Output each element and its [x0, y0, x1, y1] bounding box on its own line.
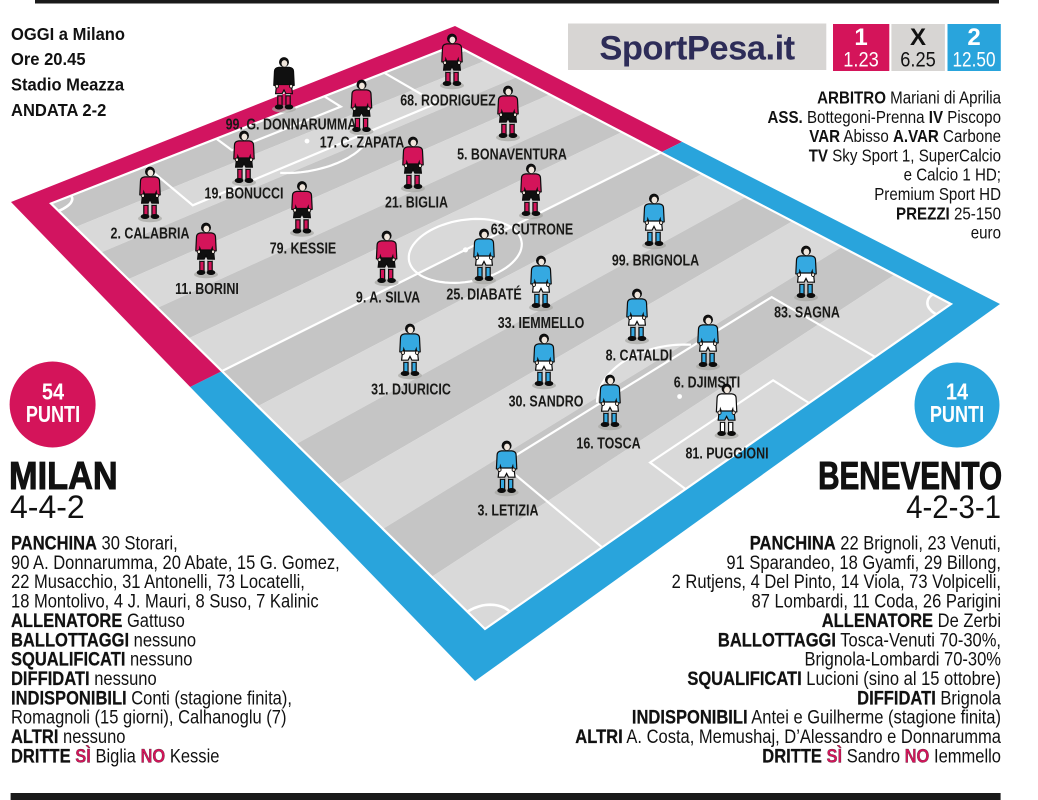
- svg-text:31. DJURICIC: 31. DJURICIC: [371, 381, 451, 399]
- svg-text:SQUALIFICATI nessuno: SQUALIFICATI nessuno: [11, 649, 193, 670]
- svg-text:22 Musacchio, 31 Antonelli, 73: 22 Musacchio, 31 Antonelli, 73 Locatelli…: [11, 571, 305, 592]
- svg-text:PUNTI: PUNTI: [930, 402, 984, 428]
- svg-text:25. DIABATÉ: 25. DIABATÉ: [446, 285, 521, 304]
- svg-text:Ore 20.45: Ore 20.45: [11, 49, 86, 70]
- svg-text:33. IEMMELLO: 33. IEMMELLO: [498, 315, 585, 333]
- svg-text:6.25: 6.25: [900, 48, 936, 72]
- svg-text:PREZZI 25-150: PREZZI 25-150: [896, 203, 1001, 224]
- svg-text:91 Sparandeo, 18 Gyamfi, 29 Bi: 91 Sparandeo, 18 Gyamfi, 29 Billong,: [726, 552, 1001, 573]
- svg-text:INDISPONIBILI Conti (stagione: INDISPONIBILI Conti (stagione finita),: [11, 687, 292, 708]
- svg-text:21. BIGLIA: 21. BIGLIA: [385, 194, 448, 212]
- svg-text:1.23: 1.23: [843, 48, 879, 72]
- svg-text:Romagnoli (15 giorni), Calhano: Romagnoli (15 giorni), Calhanoglu (7): [11, 707, 286, 728]
- svg-text:ANDATA 2-2: ANDATA 2-2: [11, 99, 106, 120]
- svg-text:18 Montolivo, 4 J. Mauri, 8 Su: 18 Montolivo, 4 J. Mauri, 8 Suso, 7 Kali…: [11, 590, 319, 611]
- svg-text:ALTRI A. Costa, Memushaj, D’Al: ALTRI A. Costa, Memushaj, D’Alessandro e…: [575, 726, 1001, 747]
- svg-text:ARBITRO Mariani di Aprilia: ARBITRO Mariani di Aprilia: [817, 87, 1002, 108]
- svg-text:1: 1: [854, 24, 867, 51]
- svg-text:4-2-3-1: 4-2-3-1: [906, 489, 1001, 525]
- svg-text:4-4-2: 4-4-2: [10, 489, 85, 525]
- svg-text:Brignola-Lombardi 70-30%: Brignola-Lombardi 70-30%: [804, 649, 1001, 670]
- svg-text:9. A. SILVA: 9. A. SILVA: [356, 289, 420, 307]
- svg-text:68. RODRIGUEZ: 68. RODRIGUEZ: [400, 92, 496, 110]
- svg-text:81. PUGGIONI: 81. PUGGIONI: [685, 445, 768, 463]
- svg-text:DRITTE SÌ Sandro NO Iemmello: DRITTE SÌ Sandro NO Iemmello: [762, 744, 1001, 766]
- svg-text:Premium Sport HD: Premium Sport HD: [874, 184, 1001, 205]
- svg-text:99. BRIGNOLA: 99. BRIGNOLA: [612, 252, 699, 270]
- svg-text:3. LETIZIA: 3. LETIZIA: [478, 502, 539, 520]
- svg-text:DIFFIDATI nessuno: DIFFIDATI nessuno: [11, 668, 157, 689]
- svg-text:SportPesa.it: SportPesa.it: [599, 30, 795, 68]
- svg-text:12.50: 12.50: [952, 48, 995, 72]
- svg-text:X: X: [910, 24, 926, 51]
- svg-text:PANCHINA 30 Storari,: PANCHINA 30 Storari,: [11, 532, 178, 553]
- svg-text:11. BORINI: 11. BORINI: [175, 281, 239, 299]
- svg-text:16. TOSCA: 16. TOSCA: [576, 435, 640, 453]
- svg-text:euro: euro: [971, 222, 1001, 243]
- svg-text:BALLOTTAGGI nessuno: BALLOTTAGGI nessuno: [11, 629, 196, 650]
- svg-text:e Calcio 1 HD;: e Calcio 1 HD;: [904, 164, 1001, 185]
- svg-text:2. CALABRIA: 2. CALABRIA: [111, 225, 190, 243]
- svg-text:INDISPONIBILI Antei e Guilherm: INDISPONIBILI Antei e Guilherme (stagion…: [632, 707, 1001, 728]
- svg-text:5. BONAVENTURA: 5. BONAVENTURA: [457, 146, 567, 164]
- svg-text:PANCHINA 22 Brignoli, 23 Venut: PANCHINA 22 Brignoli, 23 Venuti,: [750, 532, 1001, 553]
- svg-text:VAR Abisso A.VAR Carbone: VAR Abisso A.VAR Carbone: [809, 126, 1001, 147]
- svg-text:TV Sky Sport 1, SuperCalcio: TV Sky Sport 1, SuperCalcio: [809, 145, 1001, 166]
- svg-text:BALLOTTAGGI Tosca-Venuti 70-30: BALLOTTAGGI Tosca-Venuti 70-30%,: [718, 629, 1001, 650]
- svg-text:17. C. ZAPATA: 17. C. ZAPATA: [320, 134, 404, 152]
- svg-text:OGGI a Milano: OGGI a Milano: [11, 23, 125, 44]
- svg-text:PUNTI: PUNTI: [26, 402, 80, 428]
- svg-text:ALLENATORE Gattuso: ALLENATORE Gattuso: [11, 610, 185, 631]
- svg-text:DIFFIDATI Brignola: DIFFIDATI Brignola: [857, 687, 1001, 708]
- svg-text:83. SAGNA: 83. SAGNA: [774, 304, 840, 322]
- svg-text:ALLENATORE De Zerbi: ALLENATORE De Zerbi: [822, 610, 1001, 631]
- svg-text:90 A. Donnarumma, 20 Abate, 15: 90 A. Donnarumma, 20 Abate, 15 G. Gomez,: [11, 552, 340, 573]
- svg-text:8. CATALDI: 8. CATALDI: [606, 347, 673, 365]
- svg-text:2 Rutjens, 4 Del Pinto, 14 Vio: 2 Rutjens, 4 Del Pinto, 14 Viola, 73 Vol…: [672, 571, 1001, 592]
- svg-text:ASS. Bottegoni-Prenna IV Pisco: ASS. Bottegoni-Prenna IV Piscopo: [767, 107, 1001, 128]
- svg-text:63. CUTRONE: 63. CUTRONE: [491, 221, 573, 239]
- svg-text:79. KESSIE: 79. KESSIE: [270, 240, 337, 258]
- svg-text:DRITTE SÌ Biglia NO Kessie: DRITTE SÌ Biglia NO Kessie: [11, 744, 220, 766]
- svg-text:30. SANDRO: 30. SANDRO: [509, 393, 584, 411]
- svg-text:19. BONUCCI: 19. BONUCCI: [205, 185, 284, 203]
- svg-text:87 Lombardi, 11 Coda, 26 Parig: 87 Lombardi, 11 Coda, 26 Parigini: [752, 590, 1001, 611]
- svg-text:SQUALIFICATI Lucioni (sino al: SQUALIFICATI Lucioni (sino al 15 ottobre…: [687, 668, 1001, 689]
- svg-text:ALTRI nessuno: ALTRI nessuno: [11, 726, 126, 747]
- svg-text:Stadio Meazza: Stadio Meazza: [11, 74, 124, 95]
